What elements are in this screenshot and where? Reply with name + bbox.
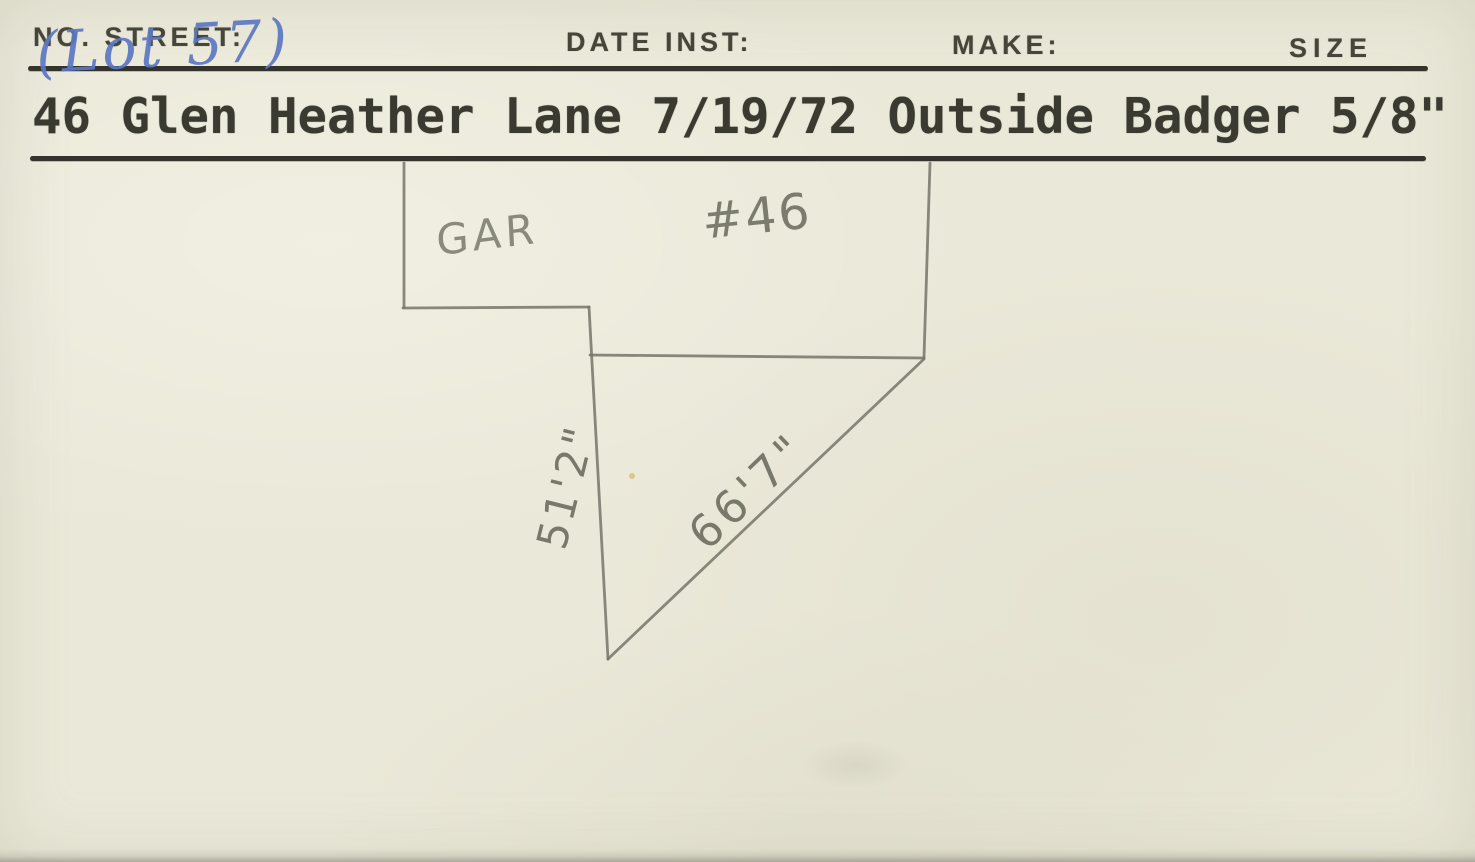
card-bottom-edge bbox=[0, 849, 1475, 862]
garage-bottom-wall-line bbox=[403, 307, 589, 308]
house-right-wall-line bbox=[924, 163, 930, 357]
house-number-label: #46 bbox=[699, 182, 814, 250]
typed-record-line: 46 Glen Heather Lane 7/19/72 Outside Bad… bbox=[32, 92, 1448, 141]
handwritten-lot-annotation: (Lot 57) bbox=[34, 7, 291, 86]
utility-record-card: NO. STREET: DATE INST: MAKE: SIZE (Lot 5… bbox=[0, 0, 1475, 862]
house-bottom-wall-line bbox=[590, 355, 924, 358]
